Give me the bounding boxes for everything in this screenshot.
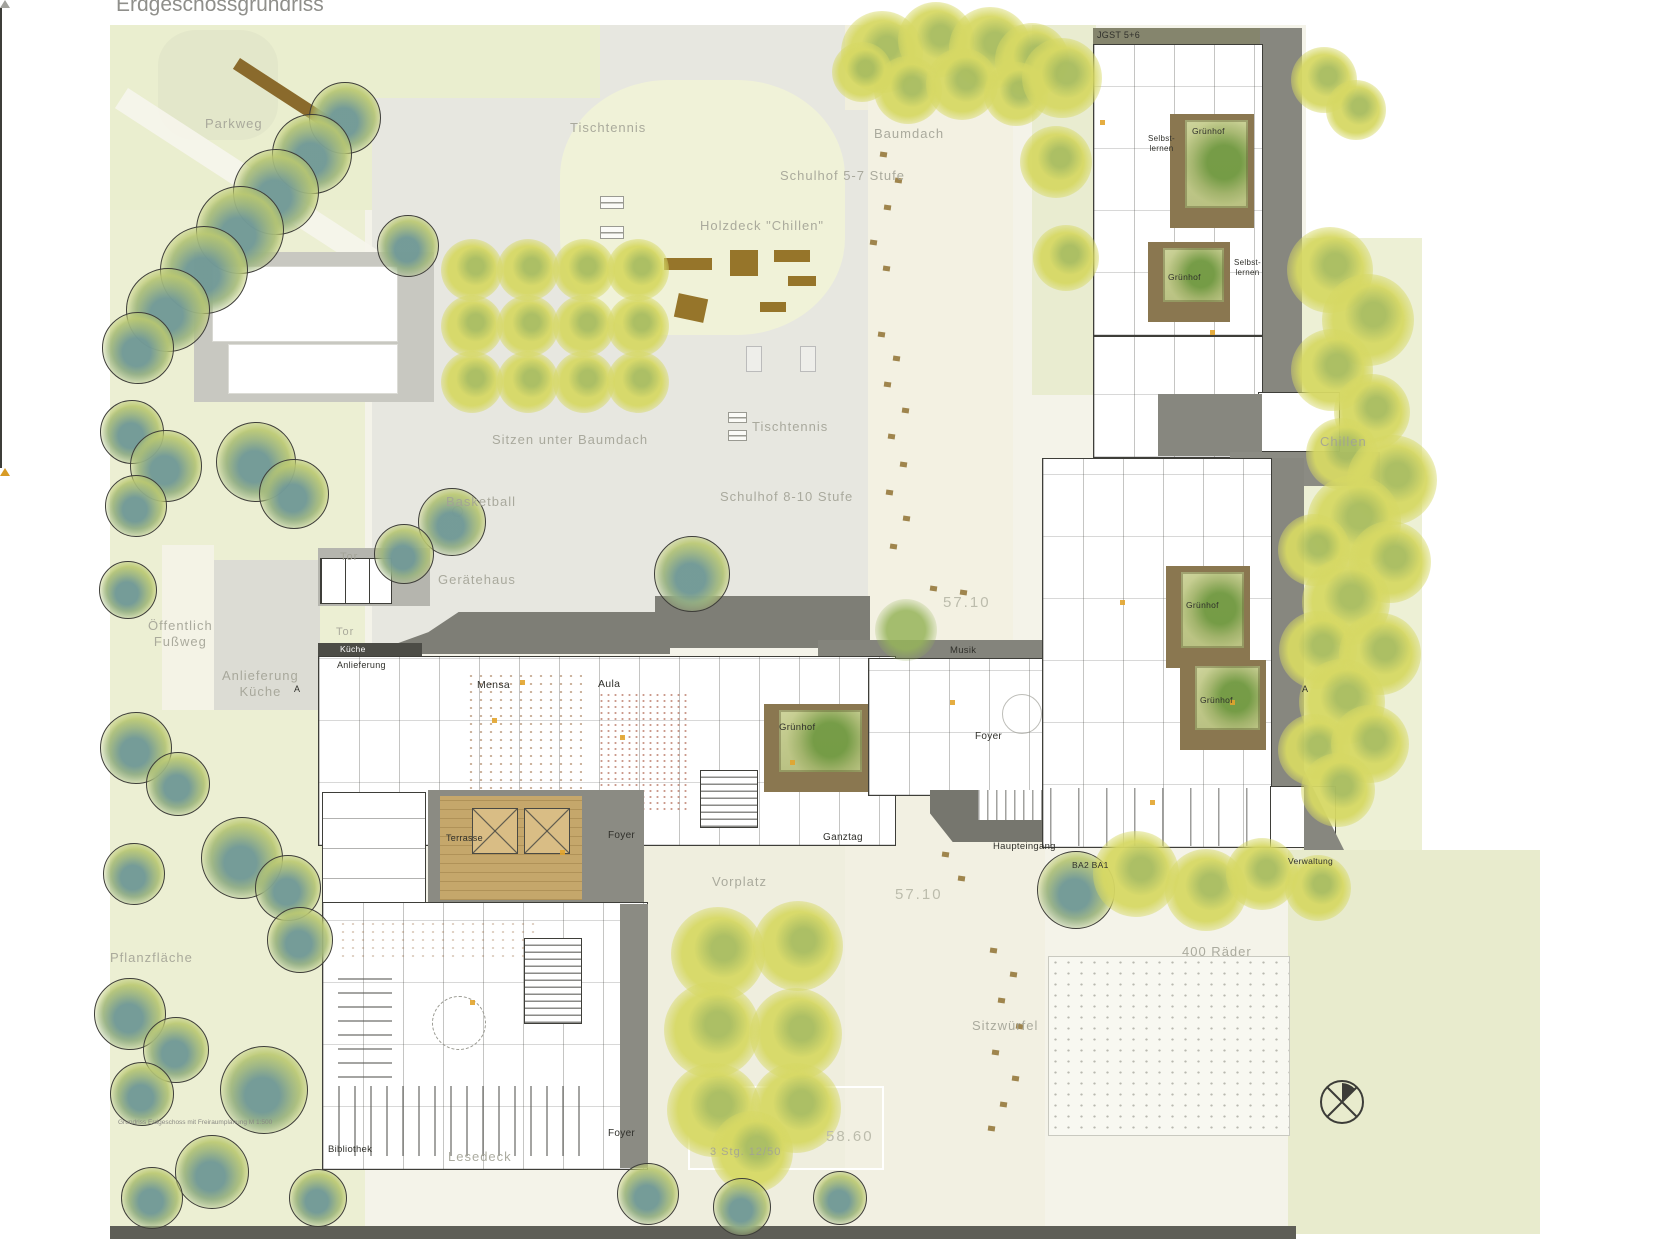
sitzwuerfel-cube [886, 490, 894, 496]
sitzwuerfel-cube [942, 852, 950, 858]
label-basketball: Basketball [446, 494, 516, 509]
library-tables [338, 920, 538, 960]
roof-dark-east [1260, 28, 1302, 394]
label-tor-1: Tor [340, 551, 358, 563]
label-treppe: 3 Stg. 12/50 [710, 1146, 781, 1158]
wood-bench [730, 250, 758, 276]
label-pflanzflaeche: Pflanzfläche [110, 950, 193, 965]
label-baumdach: Baumdach [874, 126, 944, 141]
label-gruenhof-main: Grünhof [779, 722, 815, 733]
sitzwuerfel-cube [1010, 972, 1018, 978]
label-gruenhof-se2: Grünhof [1200, 695, 1233, 705]
label-terrasse: Terrasse [446, 833, 483, 843]
table-tennis-icon [600, 226, 624, 239]
sitzwuerfel-cube [893, 356, 901, 362]
interior-wall [0, 8, 2, 198]
sitzwuerfel-cube [890, 544, 898, 550]
label-sitzen-unter-baumdach: Sitzen unter Baumdach [492, 432, 648, 447]
label-parkweg: Parkweg [205, 116, 263, 131]
label-sitzwuerfel: Sitzwürfel [972, 1018, 1038, 1033]
label-aula: Aula [598, 678, 620, 690]
label-oeffentlich-fussweg: Öffentlich Fußweg [148, 618, 213, 649]
roof-dark-mid [1158, 394, 1262, 456]
furniture-accent [1120, 600, 1125, 605]
wood-bench [788, 276, 816, 286]
sitzwuerfel-cube [902, 408, 910, 414]
furniture-accent [950, 700, 955, 705]
sitzwuerfel-cube [884, 205, 892, 211]
table-tennis-icon [600, 196, 624, 209]
table-tennis-icon [728, 430, 747, 441]
plan-caption: Grundriss Erdgeschoss mit Freiraumplanun… [118, 1119, 272, 1126]
label-tischtennis-mid: Tischtennis [752, 419, 828, 434]
table-tennis-icon [728, 412, 747, 423]
sitzwuerfel-cube [884, 382, 892, 388]
geraetehaus-building [320, 558, 392, 604]
sitzwuerfel-cube [888, 434, 896, 440]
stair-core [700, 770, 758, 828]
furniture-accent [1210, 330, 1215, 335]
label-ganztag: Ganztag [823, 832, 863, 843]
entrance-steps [978, 790, 1052, 820]
library-shelves [338, 968, 392, 1078]
sitzwuerfel-cube [958, 876, 966, 882]
furniture-accent [520, 680, 525, 685]
section-marker-east: A [1302, 684, 1308, 694]
yard-table [746, 346, 762, 372]
bike-parking-area [1048, 956, 1290, 1136]
pergola-canopy [472, 808, 518, 854]
label-foyer-east: Foyer [975, 731, 1002, 742]
label-gruenhof-ne2: Grünhof [1168, 272, 1201, 282]
gruenhof-courtyard [764, 704, 868, 792]
label-400-raeder: 400 Räder [1182, 944, 1252, 959]
sitzwuerfel-cube [988, 1126, 996, 1132]
wood-bench [664, 258, 712, 270]
label-chillen-east: Chillen [1320, 434, 1367, 449]
sitzwuerfel-cube [930, 586, 938, 592]
library-shelves [338, 1086, 588, 1156]
label-schulhof-8-10: Schulhof 8-10 Stufe [720, 489, 853, 504]
wood-bench [774, 250, 810, 262]
label-anlieferung: Anlieferung [337, 660, 386, 670]
label-schulhof-5-7: Schulhof 5-7 Stufe [780, 168, 905, 183]
label-level-57-south: 57.10 [895, 886, 943, 903]
entrance-marker [0, 468, 10, 476]
label-anlieferung-kueche: Anlieferung Küche [222, 668, 299, 699]
sitzwuerfel-cube [1012, 1076, 1020, 1082]
playground-swing-icon [0, 0, 10, 8]
yard-table [800, 346, 816, 372]
label-mensa: Mensa [477, 679, 510, 691]
label-foyer-bibliothek: Foyer [608, 1128, 635, 1139]
label-musik: Musik [950, 645, 976, 656]
ground-baumdach-plaza [845, 25, 1013, 110]
label-kueche: Küche [340, 644, 366, 654]
page-title: Erdgeschossgrundriss [116, 0, 324, 17]
furniture-accent [1150, 800, 1155, 805]
label-vorplatz: Vorplatz [712, 874, 767, 889]
label-tor-2: Tor [336, 626, 354, 638]
library-core [524, 938, 582, 1024]
label-bibliothek: Bibliothek [328, 1144, 372, 1155]
tree [1326, 80, 1386, 140]
label-selbstlernen-1: Selbst- lernen [1148, 134, 1175, 153]
label-gruenhof-se1: Grünhof [1186, 600, 1219, 610]
gruenhof-courtyard [1166, 566, 1250, 668]
sitzwuerfel-cube [1000, 1102, 1008, 1108]
sitzwuerfel-cube [878, 332, 886, 338]
section-marker-west: A [294, 684, 300, 694]
existing-building-b [228, 344, 398, 394]
ground-park-east [1302, 238, 1422, 852]
furniture-accent [1100, 120, 1105, 125]
label-lesedeck: Lesedeck [448, 1149, 512, 1164]
site-plan-page: Erdgeschossgrundriss Parkweg Tischtennis… [0, 0, 1653, 1239]
label-bauabschnitte: BA2 BA1 [1072, 860, 1109, 870]
label-gruenhof-ne1: Grünhof [1192, 126, 1225, 136]
furniture-accent [790, 760, 795, 765]
furniture-accent [470, 1000, 475, 1005]
label-level-57-north: 57.10 [943, 594, 991, 611]
existing-building-a [212, 266, 398, 342]
sitzwuerfel-cube [990, 948, 998, 954]
roof-dark-southeast [1272, 458, 1304, 786]
reading-circle [432, 996, 486, 1050]
gruenhof-courtyard [1180, 660, 1266, 750]
label-jgst-5-6: JGST 5+6 [1097, 30, 1140, 40]
wood-bench [760, 302, 786, 312]
sitzwuerfel-cube [870, 240, 878, 246]
furniture-accent [492, 718, 497, 723]
ground-wing-west-green [1032, 25, 1096, 395]
furniture-accent [620, 735, 625, 740]
foyer-round-table [1002, 694, 1042, 734]
ground-vorplatz [640, 845, 845, 1230]
label-selbstlernen-2: Selbst- lernen [1234, 258, 1261, 277]
gruenhof-courtyard [1148, 242, 1230, 322]
ground-park-southeast [1288, 850, 1540, 1234]
sitzwuerfel-cube [900, 462, 908, 468]
furniture-accent [560, 850, 565, 855]
interior-wall [0, 388, 2, 468]
sitzwuerfel-cube [883, 266, 891, 272]
label-foyer-center: Foyer [608, 830, 635, 841]
label-tischtennis-north: Tischtennis [570, 120, 646, 135]
office-partitions [1050, 788, 1270, 846]
label-holzdeck-chillen: Holzdeck "Chillen" [700, 218, 824, 233]
sitzwuerfel-cube [998, 998, 1006, 1004]
north-arrow-icon [1318, 1078, 1366, 1126]
sitzwuerfel-cube [880, 152, 888, 158]
label-haupteingang: Haupteingang [993, 841, 1056, 852]
sitzwuerfel-cube [992, 1050, 1000, 1056]
label-level-58-60: 58.60 [826, 1128, 874, 1145]
site-boundary-bar [110, 1226, 1296, 1239]
sitzwuerfel-cube [903, 516, 911, 522]
label-geraetehaus: Gerätehaus [438, 572, 516, 587]
pergola-canopy [524, 808, 570, 854]
interior-wall [0, 198, 2, 388]
label-verwaltung: Verwaltung [1288, 856, 1333, 866]
